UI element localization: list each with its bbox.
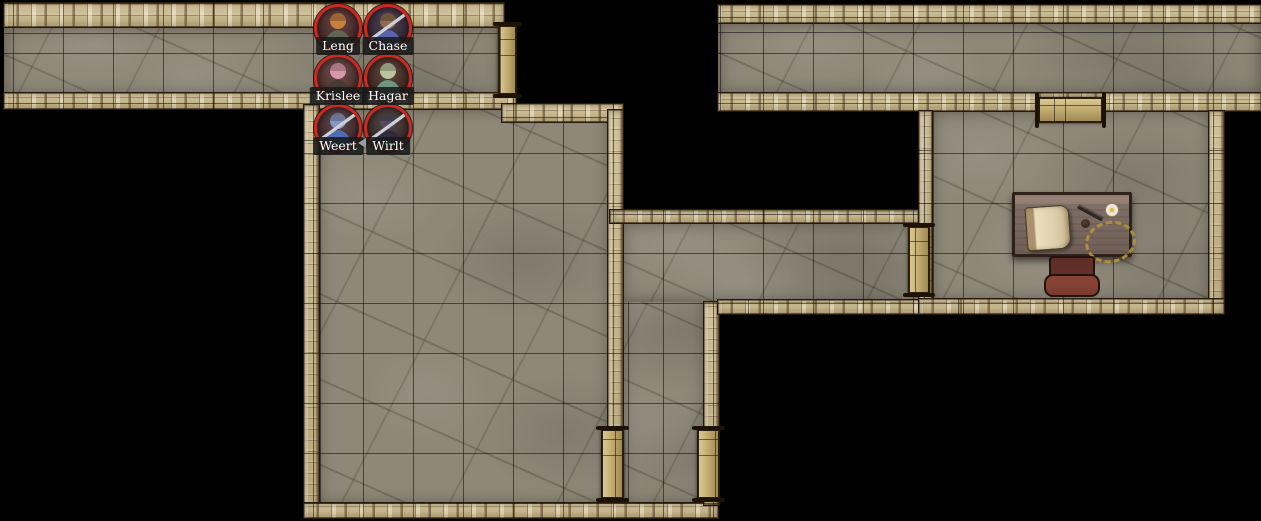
token-label: Wirlt [366,137,410,155]
candle [1105,203,1119,217]
grid-overlay [610,210,925,223]
token-label: Krislee [310,87,367,105]
grid-overlay [718,93,1261,111]
token-label: Chase [363,37,414,55]
grid-overlay [603,431,622,497]
wall [4,3,504,27]
token-krislee[interactable]: Krislee [314,54,362,102]
wall [4,93,516,109]
chair-seat [1044,274,1100,297]
wall [304,503,718,518]
grid-overlay [1209,111,1224,314]
grid-overlay [4,93,516,109]
grid-overlay [4,26,502,96]
map-canvas[interactable]: LengChaseKrisleeHagarWeertWirlt [0,0,1261,521]
door-south-corridor-east[interactable] [697,429,720,499]
token-label: Leng [316,37,360,55]
grid-overlay [317,108,610,505]
grid-overlay [910,228,928,292]
east-corridor-floor [718,23,1261,94]
wall [919,299,1224,314]
wall [1209,111,1224,314]
door-study-north[interactable] [1038,97,1103,123]
wall [304,105,319,518]
scroll [1025,205,1072,252]
door-west-corridor-east[interactable] [498,25,517,95]
mid-corridor-floor [621,222,920,302]
grid-overlay [621,222,920,302]
wall [718,93,1261,111]
token-hagar[interactable]: Hagar [364,54,412,102]
token-leng[interactable]: Leng [314,4,362,52]
grid-overlay [718,300,933,314]
west-corridor-floor [4,26,502,96]
grid-overlay [699,431,718,497]
great-hall-floor [317,108,610,505]
grid-overlay [718,23,1261,94]
chair [1044,256,1100,297]
grid-overlay [4,3,504,27]
token-weert[interactable]: Weert [314,104,362,152]
grid-overlay [500,27,515,93]
grid-overlay [1040,99,1101,121]
door-hall-east[interactable] [601,429,624,499]
grid-overlay [304,105,319,518]
wall [610,210,925,223]
door-study-west[interactable] [908,226,930,294]
grid-overlay [718,5,1261,23]
wall [718,5,1261,23]
token-chase[interactable]: Chase [364,4,412,52]
token-marker [358,138,366,148]
wall [502,104,623,122]
grid-overlay [502,104,623,122]
token-label: Hagar [362,87,414,105]
ink-knob [1081,219,1090,228]
grid-overlay [304,503,718,518]
token-wirlt[interactable]: Wirlt [364,104,412,152]
wall [718,300,933,314]
grid-overlay [919,299,1224,314]
token-label: Weert [313,137,363,155]
